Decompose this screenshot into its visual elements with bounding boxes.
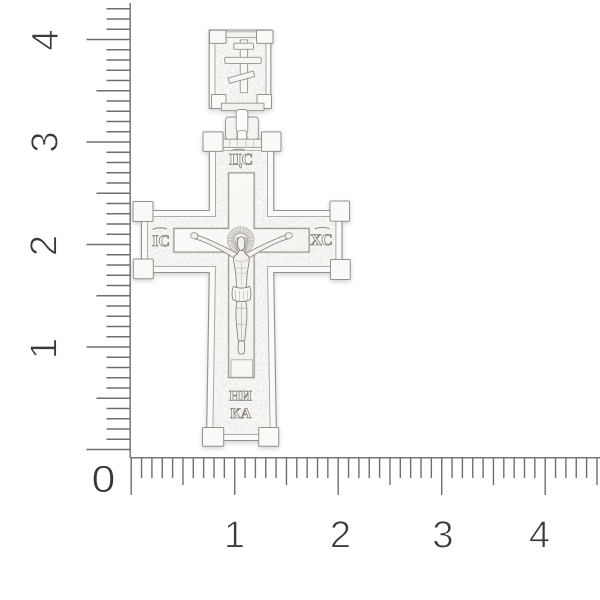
svg-text:4: 4	[25, 29, 67, 50]
svg-text:3: 3	[432, 515, 453, 557]
svg-text:НИ: НИ	[229, 388, 252, 404]
svg-text:3: 3	[25, 131, 67, 152]
svg-text:КА: КА	[230, 406, 252, 422]
svg-text:ХС: ХС	[310, 232, 333, 249]
svg-text:2: 2	[24, 235, 66, 256]
svg-text:ІС: ІС	[152, 233, 170, 250]
svg-text:1: 1	[24, 338, 66, 359]
svg-text:2: 2	[330, 515, 351, 557]
svg-text:0: 0	[92, 459, 116, 501]
svg-text:4: 4	[529, 515, 550, 557]
svg-text:1: 1	[224, 515, 245, 557]
svg-text:ЦС: ЦС	[229, 151, 253, 168]
